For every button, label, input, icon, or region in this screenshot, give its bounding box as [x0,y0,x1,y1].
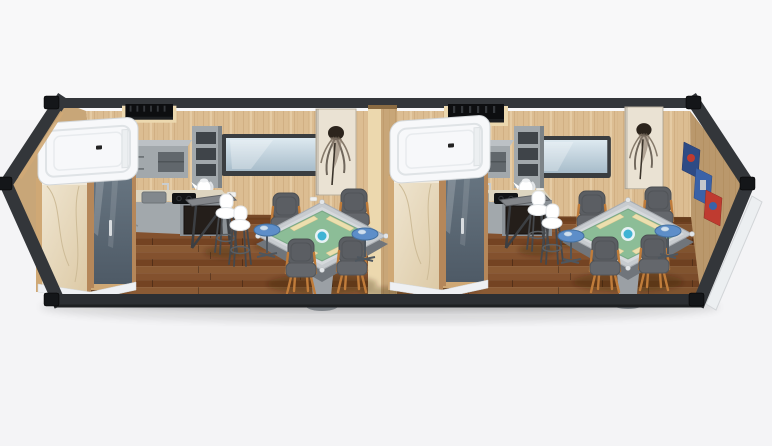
divider-cap [368,105,397,109]
casting-bottom-left [44,293,59,306]
render-stage [0,0,772,446]
window [221,134,325,176]
bathroom-pod [388,115,490,298]
casting-right-point [740,177,755,190]
flower-art-panel [625,107,663,189]
container-home-render [0,0,772,446]
poster-3-motif [709,202,717,210]
poster-1-motif [687,154,695,162]
poster-2-motif [700,180,706,190]
flower-art-panel [316,109,356,195]
casting-left-point [0,177,12,190]
casting-top-right [686,96,701,109]
divider-lit-face [368,107,381,297]
wall-socket-2 [310,197,317,201]
casting-top-left [44,96,59,109]
container-home [0,96,762,311]
casting-bottom-right [689,293,704,306]
window [536,136,611,178]
